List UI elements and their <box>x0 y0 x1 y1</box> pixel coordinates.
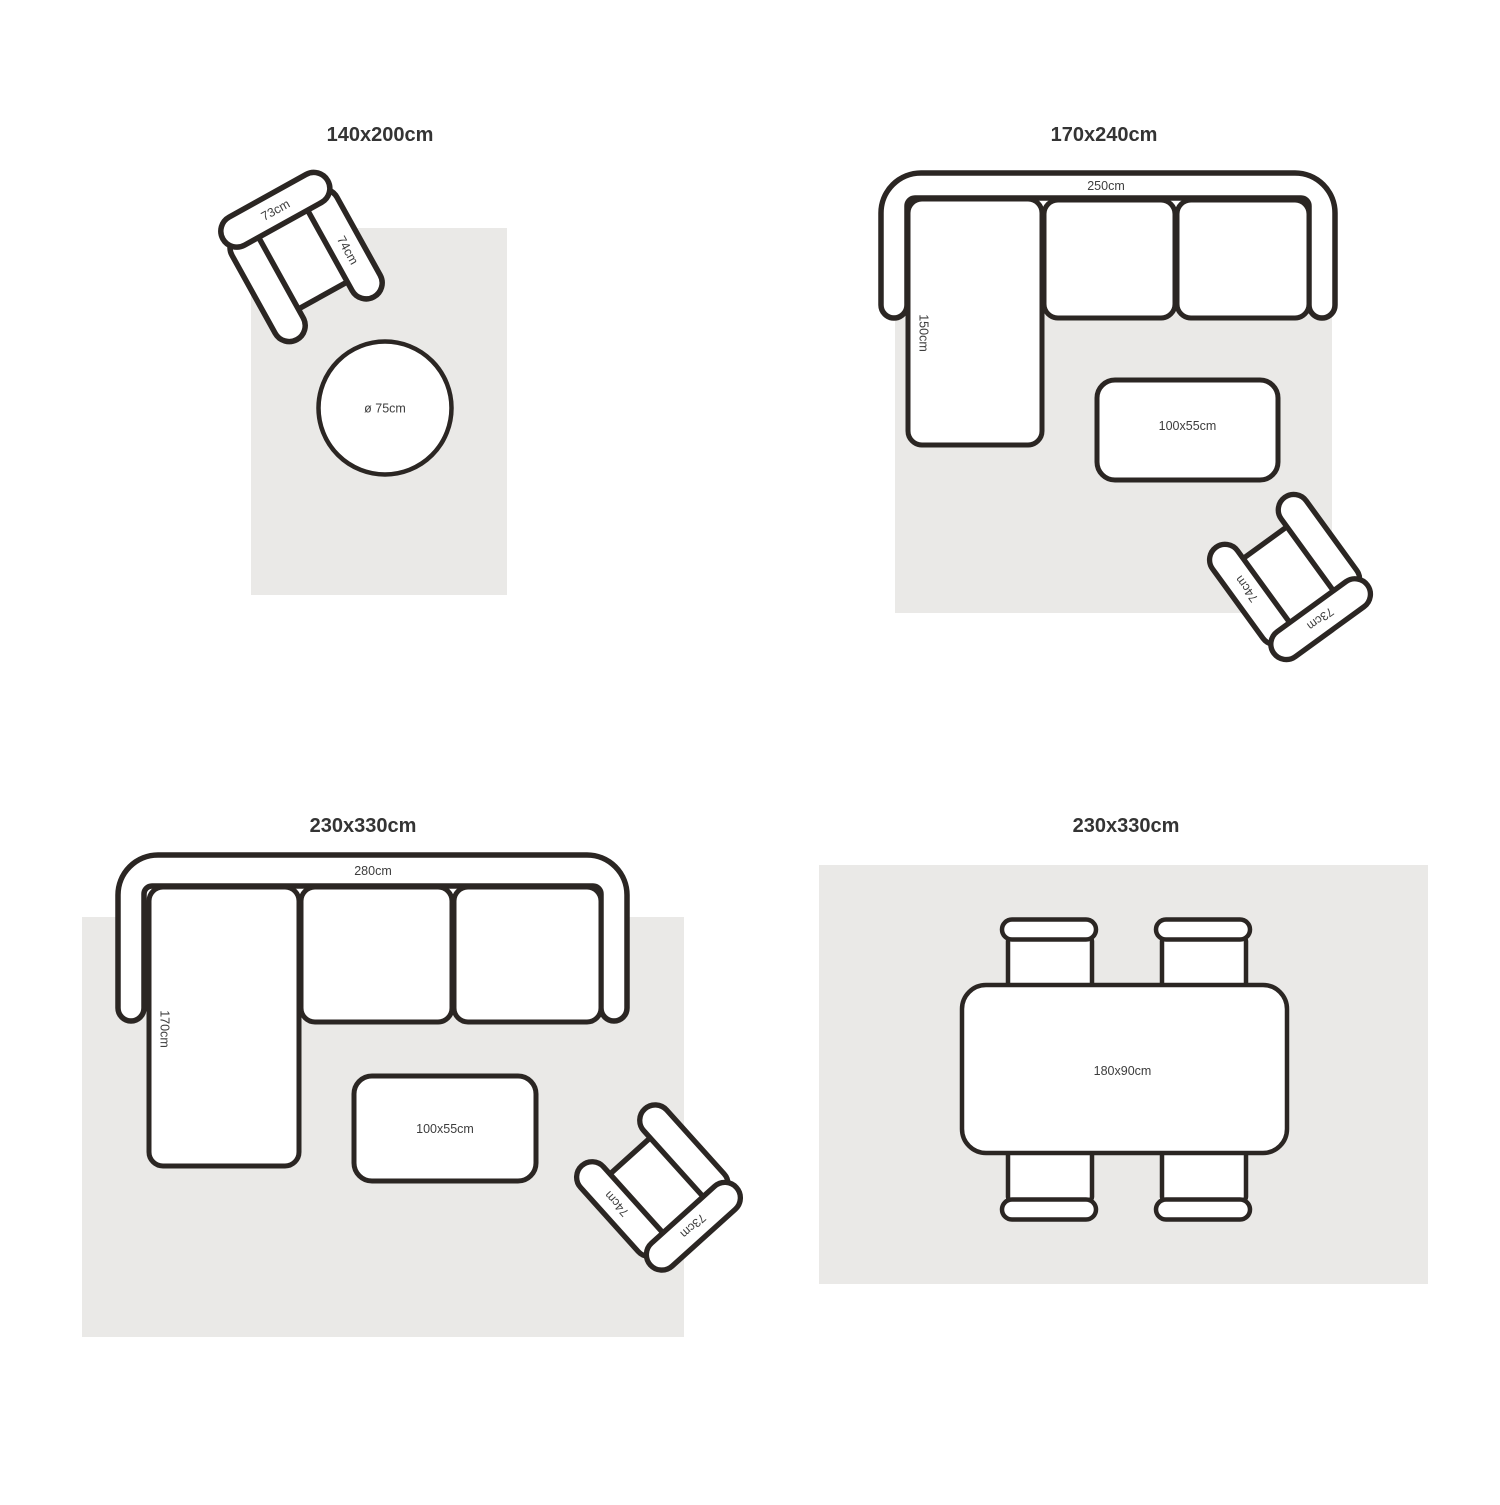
svg-text:100x55cm: 100x55cm <box>1159 419 1217 433</box>
svg-text:ø 75cm: ø 75cm <box>364 402 406 416</box>
svg-text:230x330cm: 230x330cm <box>310 815 417 837</box>
svg-text:280cm: 280cm <box>354 864 392 878</box>
svg-text:170cm: 170cm <box>158 1010 172 1048</box>
svg-text:180x90cm: 180x90cm <box>1094 1064 1152 1078</box>
svg-text:100x55cm: 100x55cm <box>416 1122 474 1136</box>
svg-text:150cm: 150cm <box>917 314 931 352</box>
svg-text:250cm: 250cm <box>1087 179 1125 193</box>
svg-text:230x330cm: 230x330cm <box>1073 815 1180 837</box>
svg-text:170x240cm: 170x240cm <box>1051 124 1158 146</box>
svg-text:140x200cm: 140x200cm <box>327 124 434 146</box>
